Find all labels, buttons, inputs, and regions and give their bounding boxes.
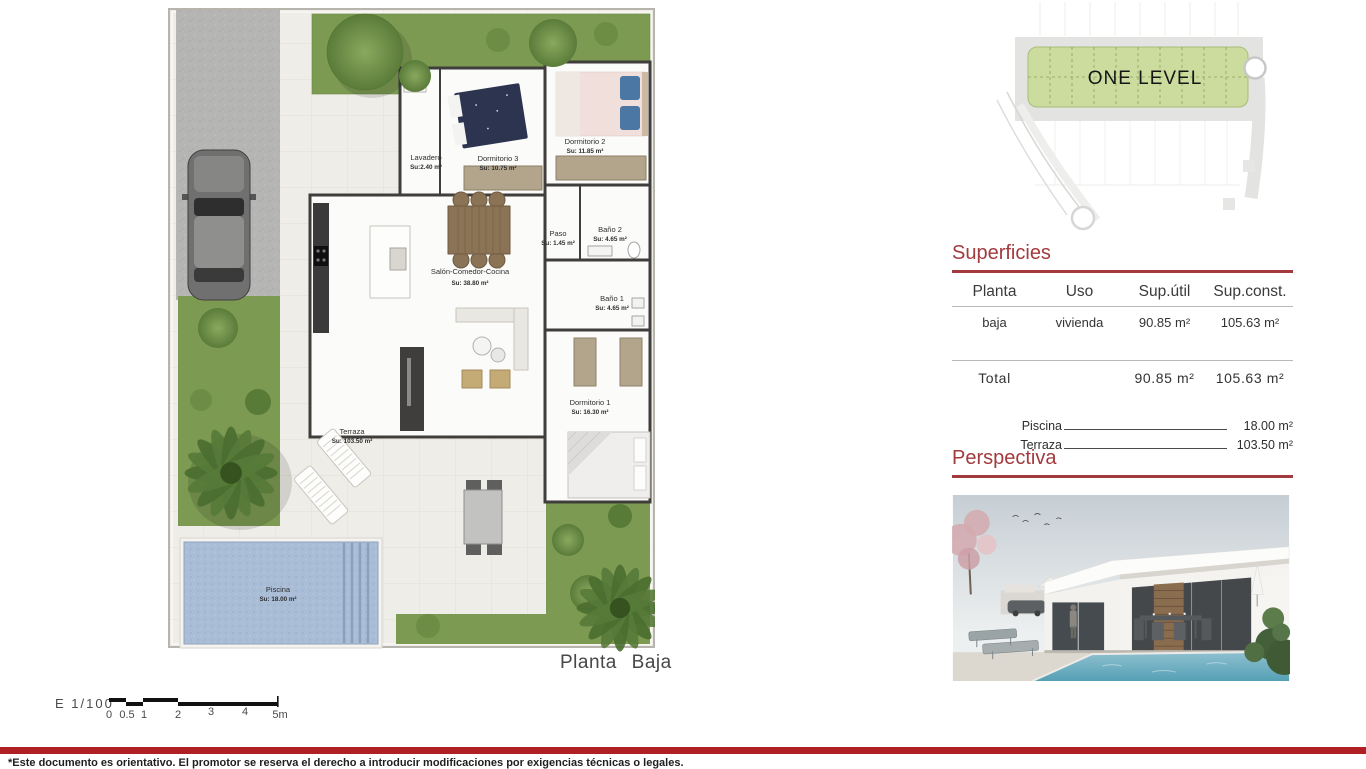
room-label: Piscina xyxy=(266,585,291,594)
room-area: Su: 4.65 m² xyxy=(595,305,629,312)
room-area: Su: 18.00 m² xyxy=(259,596,296,603)
dining-table xyxy=(448,192,510,268)
scale-tick: 3 xyxy=(208,706,214,718)
scale-tick: 5m xyxy=(272,709,287,721)
roundabout-bottom xyxy=(1072,207,1094,229)
table-total-row: Total 90.85 m² 105.63 m² xyxy=(952,361,1293,386)
room-label: Dormitorio 3 xyxy=(478,154,519,163)
room-label: Terraza xyxy=(339,427,365,436)
room-area: Su: 4.65 m² xyxy=(593,236,627,243)
site-block xyxy=(1243,160,1255,172)
plan-title: Planta Baja xyxy=(560,652,740,674)
cell-sup-util: 90.85 m² xyxy=(1122,315,1207,330)
cell-uso: vivienda xyxy=(1037,315,1122,330)
wardrobe xyxy=(556,156,646,180)
scale-tick: 2 xyxy=(175,709,181,721)
bed-dorm1 xyxy=(568,432,650,498)
room-label: Salón-Comedor-Cocina xyxy=(431,267,510,276)
site-plan-label: ONE LEVEL xyxy=(1088,68,1203,89)
total-sup-util: 90.85 m² xyxy=(1122,370,1207,386)
room-area: Su: 38.80 m² xyxy=(451,280,488,287)
leader-line xyxy=(1064,416,1227,430)
scale-tick: 0.5 xyxy=(119,709,134,721)
room-area: Su:2.40 m² xyxy=(410,164,442,171)
col-uso: Uso xyxy=(1037,283,1122,301)
room-area: Su: 1.45 m² xyxy=(541,240,575,247)
col-planta: Planta xyxy=(952,283,1037,301)
scale-tick: 4 xyxy=(242,706,248,718)
footer-red-bar xyxy=(0,747,1366,754)
extra-row-piscina: Piscina 18.00 m² xyxy=(952,416,1293,433)
perspective-render xyxy=(952,495,1290,681)
perspectiva-section: Perspectiva xyxy=(952,447,1293,681)
col-sup-const: Sup.const. xyxy=(1207,283,1293,301)
total-label: Total xyxy=(952,370,1037,386)
extra-label: Piscina xyxy=(952,419,1062,433)
room-label: Lavadero xyxy=(410,153,441,162)
perspectiva-title: Perspectiva xyxy=(952,447,1293,478)
outdoor-table xyxy=(464,480,502,555)
scale-tick: 0 xyxy=(106,709,112,721)
site-block xyxy=(1223,198,1235,210)
cell-sup-const: 105.63 m² xyxy=(1207,315,1293,330)
room-area: Su: 16.30 m² xyxy=(571,409,608,416)
superficies-table: Planta Uso Sup.útil Sup.const. baja vivi… xyxy=(952,273,1293,452)
room-area: Su: 11.85 m² xyxy=(567,148,604,155)
scale-bar-graphic xyxy=(105,696,290,710)
total-sup-const: 105.63 m² xyxy=(1207,370,1293,386)
room-area: Su: 10.75 m² xyxy=(479,165,516,172)
site-plan: ONE LEVEL xyxy=(995,0,1295,235)
scale-tick: 1 xyxy=(141,709,147,721)
superficies-title: Superficies xyxy=(952,242,1293,273)
room-label: Dormitorio 1 xyxy=(570,398,611,407)
extra-value: 18.00 m² xyxy=(1227,419,1293,433)
col-sup-util: Sup.útil xyxy=(1122,283,1207,301)
one-level-block: ONE LEVEL xyxy=(1028,47,1248,107)
footer-note: *Este documento es orientativo. El promo… xyxy=(8,757,684,769)
car xyxy=(182,150,256,300)
tv-partition xyxy=(400,347,424,431)
room-label: Baño 2 xyxy=(598,225,622,234)
scale-bar: E 1/100 0 0.5 1 2 3 4 5m xyxy=(55,694,305,728)
table-header: Planta Uso Sup.útil Sup.const. xyxy=(952,273,1293,307)
table-row: baja vivienda 90.85 m² 105.63 m² xyxy=(952,307,1293,330)
roundabout-top xyxy=(1245,58,1266,79)
room-label: Dormitorio 2 xyxy=(565,137,606,146)
superficies-section: Superficies Planta Uso Sup.útil Sup.cons… xyxy=(952,242,1293,452)
room-area: Su: 103.50 m² xyxy=(332,438,373,445)
cell-planta: baja xyxy=(952,315,1037,330)
kitchen-counter xyxy=(313,203,329,333)
floor-plan: Lavadero Su:2.40 m² Dormitorio 3 Su: 10.… xyxy=(168,8,655,655)
room-label: Paso xyxy=(549,229,566,238)
room-label: Baño 1 xyxy=(600,294,624,303)
